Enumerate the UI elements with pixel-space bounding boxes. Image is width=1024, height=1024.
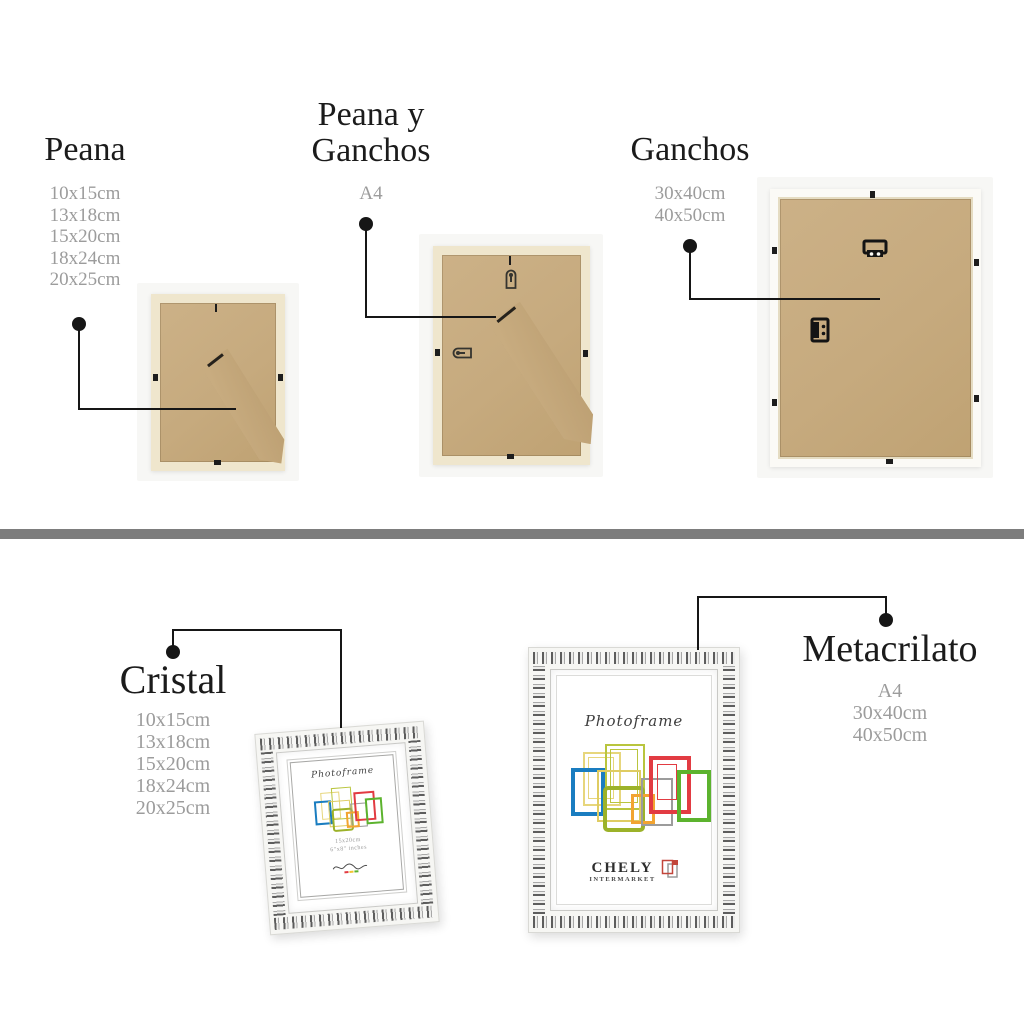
frame-molding-texture (533, 666, 545, 914)
peana-ganchos-callout-line-horizontal (365, 316, 496, 318)
frame-clip (435, 349, 440, 356)
cristal-size-item: 10x15cm (103, 709, 243, 731)
frame-clip (214, 460, 221, 465)
brand-subname: INTERMARKET (589, 876, 655, 883)
brand-logo-mark-icon (661, 859, 679, 884)
peana-ganchos-size-item: A4 (311, 183, 431, 205)
frame-clip (974, 395, 979, 402)
sawtooth-hanger-vertical-icon (810, 317, 832, 348)
ganchos-size-list: 30x40cm 40x50cm (630, 183, 750, 226)
peana-ganchos-title-line1: Peana y (291, 97, 451, 133)
peana-ganchos-size-list: A4 (311, 183, 431, 205)
peana-size-item: 20x25cm (25, 269, 145, 291)
peana-size-list: 10x15cm 13x18cm 15x20cm 18x24cm 20x25cm (25, 183, 145, 291)
brand-logo-block: CHELY INTERMARKET (589, 859, 678, 884)
insert-signature (330, 858, 371, 880)
metacrilato-size-list: A4 30x40cm 40x50cm (830, 680, 950, 746)
frame-clip (507, 454, 514, 459)
peana-size-item: 15x20cm (25, 226, 145, 248)
peana-ganchos-title: Peana y Ganchos (291, 97, 451, 168)
frame-clip (153, 374, 158, 381)
ganchos-title: Ganchos (628, 132, 752, 168)
metacrilato-frame-glass: Photoframe CHELY INTERMARKET (550, 669, 718, 911)
peana-ganchos-title-line2: Ganchos (291, 133, 451, 169)
metacrilato-title: Metacrilato (790, 630, 990, 670)
cristal-callout-line-left (172, 629, 174, 647)
metacrilato-frame: Photoframe CHELY INTERMARKET (528, 647, 740, 933)
peana-title: Peana (25, 132, 145, 168)
frame-clip (278, 374, 283, 381)
decorative-rect (677, 770, 711, 822)
frame-molding-texture (723, 666, 735, 914)
cristal-size-item: 13x18cm (103, 731, 243, 753)
peana-callout-line-horizontal (78, 408, 236, 410)
ganchos-size-item: 40x50cm (630, 205, 750, 227)
cristal-size-item: 20x25cm (103, 797, 243, 819)
cristal-size-item: 15x20cm (103, 753, 243, 775)
insert-script-title: Photoframe (585, 712, 684, 730)
peana-ganchos-frame-back (433, 246, 590, 465)
ganchos-callout-line-vertical (689, 246, 691, 300)
cristal-frame: Photoframe 15x20cm 6"x8" inches (254, 721, 439, 936)
brand-name: CHELY (589, 861, 655, 876)
keyhole-hanger-horizontal-icon (449, 346, 473, 365)
metacrilato-size-item: 30x40cm (830, 702, 950, 724)
ganchos-callout-line-horizontal (689, 298, 880, 300)
metacrilato-callout-line-horizontal (697, 596, 887, 598)
metacrilato-callout-line-left (697, 596, 699, 650)
cristal-size-item: 18x24cm (103, 775, 243, 797)
insert-color-rectangles (565, 744, 703, 826)
cristal-title: Cristal (103, 659, 243, 701)
metacrilato-callout-line-right (885, 596, 887, 615)
cristal-frame-insert: Photoframe 15x20cm 6"x8" inches (290, 754, 404, 898)
frame-molding-texture (533, 916, 735, 928)
sawtooth-hanger-horizontal-icon (862, 239, 888, 264)
metacrilato-callout-dot (879, 613, 893, 627)
insert-script-title: Photoframe (311, 766, 375, 781)
frame-clip (772, 399, 777, 406)
frame-clip (974, 259, 979, 266)
metacrilato-size-item: 40x50cm (830, 724, 950, 746)
insert-color-rectangles (311, 785, 380, 832)
insert-size-note: 15x20cm 6"x8" inches (329, 836, 367, 855)
section-divider (0, 529, 1024, 539)
insert-size-note-line2: 6"x8" inches (330, 844, 367, 855)
peana-size-item: 13x18cm (25, 205, 145, 227)
peana-size-item: 10x15cm (25, 183, 145, 205)
ganchos-frame-mdf-panel (778, 197, 973, 459)
peana-callout-line-vertical (78, 324, 80, 410)
ganchos-frame-back (770, 189, 981, 467)
cristal-callout-line-right (340, 629, 342, 728)
frame-molding-texture (533, 652, 735, 664)
cristal-size-list: 10x15cm 13x18cm 15x20cm 18x24cm 20x25cm (103, 709, 243, 819)
frame-options-infographic: Peana 10x15cm 13x18cm 15x20cm 18x24cm 20… (0, 0, 1024, 1024)
cristal-callout-line-horizontal (172, 629, 342, 631)
peana-ganchos-callout-line-vertical (365, 224, 367, 318)
peana-frame-back (151, 294, 285, 471)
ganchos-size-item: 30x40cm (630, 183, 750, 205)
decorative-rect (365, 797, 384, 824)
frame-clip (886, 459, 893, 464)
frame-clip (870, 191, 875, 198)
cristal-frame-glass: Photoframe 15x20cm 6"x8" inches (276, 742, 418, 914)
frame-clip (509, 256, 511, 265)
keyhole-hanger-vertical-icon (504, 266, 518, 295)
peana-size-item: 18x24cm (25, 248, 145, 270)
brand-text: CHELY INTERMARKET (589, 861, 655, 883)
frame-clip (772, 247, 777, 254)
frame-clip (583, 350, 588, 357)
frame-clip (215, 304, 217, 312)
metacrilato-size-item: A4 (830, 680, 950, 702)
decorative-rect (657, 764, 677, 800)
